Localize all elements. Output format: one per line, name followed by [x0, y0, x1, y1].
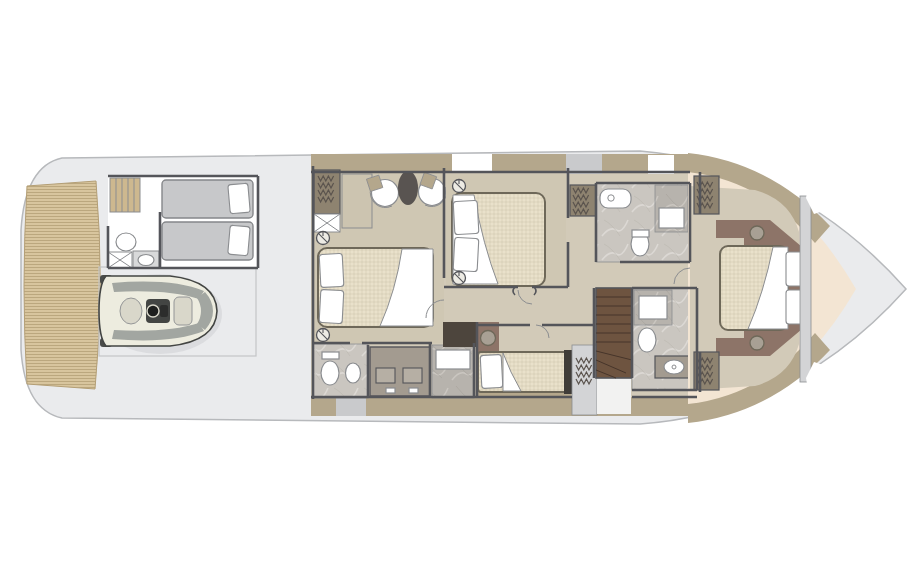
guest-pillow — [480, 354, 503, 388]
vip-shower-tray — [659, 208, 684, 228]
master-stool-bottom — [317, 329, 330, 342]
master-pillow-1 — [319, 253, 344, 287]
floor-plan-canvas — [0, 0, 920, 575]
master-bidet — [346, 363, 361, 383]
teak-deck — [24, 181, 100, 389]
vip-toilet-tank — [632, 230, 649, 237]
jet-tender — [99, 275, 217, 347]
master-sink-2 — [403, 368, 422, 383]
vip-stool-top — [453, 180, 466, 193]
master-sink-1 — [376, 368, 395, 383]
guest-washbasin — [481, 331, 496, 346]
master-vanity-tray-1 — [386, 388, 395, 393]
crew-pillow-1 — [228, 183, 250, 214]
guest-headboard — [564, 350, 572, 394]
dayhead-shower-tray — [639, 296, 667, 319]
vip-stool-bottom — [453, 272, 466, 285]
crew-sink — [138, 255, 154, 266]
master-vanity-tray-2 — [409, 388, 418, 393]
top-window-block-1 — [452, 154, 492, 173]
crew-quarters — [108, 176, 258, 268]
forward-cabin — [688, 153, 856, 423]
vip-pillow-1 — [453, 200, 479, 234]
corridor-cabinet — [443, 322, 477, 347]
bow-wardrobe-top — [694, 176, 719, 214]
crew-toilet — [116, 233, 136, 251]
tender-seat — [120, 298, 142, 324]
day-head — [632, 288, 697, 390]
master-cabin — [313, 170, 447, 343]
dayhead-toilet — [638, 328, 656, 352]
dayhead-sink — [664, 360, 684, 374]
yacht-floor-plan — [0, 0, 920, 575]
master-stool-top — [317, 232, 330, 245]
swim-platform — [24, 181, 100, 389]
bow-stool-top — [750, 226, 764, 240]
master-shower-tray — [436, 350, 470, 369]
tender-steering-wheel — [147, 305, 159, 317]
bottom-band — [311, 397, 695, 416]
crew-stairs — [110, 178, 140, 212]
master-pillow-2 — [319, 289, 344, 323]
master-oval-table — [398, 171, 418, 205]
vip-bathroom — [596, 183, 690, 262]
crew-pillow-2 — [228, 225, 250, 256]
bow-bulkhead — [800, 196, 811, 382]
master-toilet — [321, 361, 339, 385]
bow-stool-bottom — [750, 336, 764, 350]
master-toilet-tank — [322, 352, 339, 359]
vip-pillow-2 — [453, 237, 479, 271]
tender-dash — [160, 305, 168, 317]
vip-bathtub — [600, 189, 631, 208]
tender-sunpad — [174, 297, 192, 325]
master-bathroom — [313, 344, 474, 398]
top-band — [311, 154, 695, 173]
main-staircase — [596, 288, 632, 414]
bottom-gray-block — [336, 398, 366, 416]
